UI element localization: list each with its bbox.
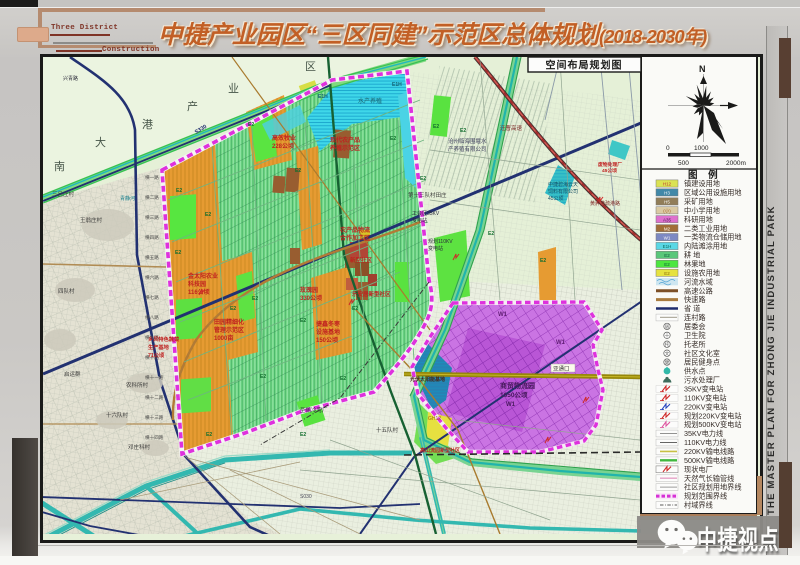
- svg-text:第十三队村田庄: 第十三队村田庄: [408, 191, 447, 199]
- svg-text:71公顷: 71公顷: [148, 351, 165, 359]
- svg-text:乐安居新型社区: 乐安居新型社区: [352, 290, 391, 298]
- svg-text:E2: E2: [540, 258, 546, 264]
- svg-text:青静河: 青静河: [120, 195, 135, 202]
- svg-text:E2: E2: [300, 318, 306, 324]
- svg-text:220KV输电线路: 220KV输电线路: [684, 447, 734, 456]
- svg-text:中小学用地: 中小学用地: [684, 206, 720, 215]
- svg-text:养殖示范区: 养殖示范区: [329, 144, 360, 152]
- svg-text:文: 文: [665, 350, 670, 357]
- svg-text:水产养殖: 水产养殖: [358, 97, 382, 105]
- svg-text:产: 产: [187, 99, 198, 113]
- svg-text:35KV变电站: 35KV变电站: [684, 385, 723, 394]
- svg-text:托: 托: [665, 341, 670, 347]
- svg-text:E2: E2: [260, 374, 266, 380]
- svg-text:王翁庄村: 王翁庄村: [80, 216, 103, 224]
- svg-text:合作加工区: 合作加工区: [340, 234, 370, 242]
- svg-text:横十四路: 横十四路: [145, 434, 164, 441]
- svg-text:健: 健: [665, 359, 670, 366]
- svg-text:GH12: GH12: [428, 416, 441, 422]
- svg-text:45公顷: 45公顷: [602, 167, 617, 174]
- svg-text:快速路: 快速路: [684, 295, 706, 304]
- svg-text:E2: E2: [206, 432, 212, 438]
- svg-text:金太阳农业: 金太阳农业: [187, 272, 218, 280]
- svg-text:黄骅港疏港路: 黄骅港疏港路: [590, 200, 620, 207]
- svg-text:E2: E2: [664, 253, 670, 258]
- svg-text:居委会: 居委会: [684, 322, 706, 331]
- svg-text:新型社区: 新型社区: [350, 256, 373, 264]
- svg-text:亚通口: 亚通口: [553, 365, 570, 373]
- svg-text:区域公用设施用地: 区域公用设施用地: [684, 188, 742, 197]
- svg-text:圣佩冷弯厂: 圣佩冷弯厂: [300, 406, 328, 414]
- svg-text:M2: M2: [664, 226, 671, 231]
- svg-text:十五队村: 十五队村: [376, 426, 399, 434]
- svg-text:现状电厂: 现状电厂: [684, 465, 713, 474]
- svg-text:W1: W1: [506, 402, 516, 408]
- svg-text:乡风特色蔬菜: 乡风特色蔬菜: [148, 335, 180, 343]
- svg-text:河流水域: 河流水域: [684, 277, 713, 286]
- svg-text:供水点: 供水点: [684, 367, 706, 376]
- svg-text:科技园: 科技园: [188, 280, 206, 288]
- svg-text:商贸物流园: 商贸物流园: [500, 381, 535, 390]
- svg-text:E2: E2: [252, 296, 258, 302]
- svg-text:横一路: 横一路: [145, 174, 159, 181]
- svg-text:玫瑰园: 玫瑰园: [300, 286, 318, 294]
- svg-text:南: 南: [54, 160, 65, 173]
- svg-text:社区规划用地界线: 社区规划用地界线: [684, 483, 742, 492]
- svg-text:横四路: 横四路: [145, 234, 159, 241]
- svg-text:规划110KV: 规划110KV: [428, 238, 453, 245]
- svg-text:横七路: 横七路: [145, 294, 159, 301]
- svg-text:横十三路: 横十三路: [145, 414, 164, 421]
- svg-text:228公顷: 228公顷: [272, 142, 294, 150]
- svg-text:E2: E2: [205, 212, 211, 218]
- svg-text:E2: E2: [175, 250, 181, 256]
- svg-text:采矿用地: 采矿用地: [684, 197, 713, 206]
- svg-text:H5: H5: [664, 200, 670, 205]
- svg-text:十六队村: 十六队村: [106, 411, 129, 419]
- svg-text:横八路: 横八路: [145, 314, 159, 321]
- svg-text:E2: E2: [352, 306, 358, 312]
- svg-text:110KV电力线: 110KV电力线: [684, 438, 727, 447]
- svg-text:邓庄科村: 邓庄科村: [128, 443, 151, 451]
- svg-text:捷鑫冬枣: 捷鑫冬枣: [316, 320, 341, 328]
- svg-text:150公顷: 150公顷: [316, 336, 338, 344]
- svg-text:托老所: 托老所: [684, 340, 706, 349]
- svg-text:A35: A35: [663, 217, 672, 222]
- svg-text:沧州临海围堰水: 沧州临海围堰水: [448, 137, 487, 145]
- svg-text:光伏太阳能基地: 光伏太阳能基地: [409, 376, 445, 383]
- svg-text:居民健身点: 居民健身点: [684, 358, 720, 367]
- svg-text:省 道: 省 道: [684, 304, 700, 313]
- svg-text:E2: E2: [300, 432, 306, 438]
- svg-text:220KV变电站: 220KV变电站: [684, 402, 727, 411]
- svg-text:高速公路: 高速公路: [684, 286, 713, 295]
- svg-text:天然气长输管线: 天然气长输管线: [684, 474, 734, 483]
- svg-text:变电站: 变电站: [428, 245, 443, 252]
- svg-text:45公顷: 45公顷: [548, 195, 564, 202]
- svg-text:横五路: 横五路: [145, 254, 159, 261]
- svg-text:规划范围界线: 规划范围界线: [684, 492, 727, 501]
- svg-text:1000亩: 1000亩: [214, 334, 233, 342]
- svg-text:330公顷: 330公顷: [300, 294, 322, 302]
- svg-text:规划500KV变电站: 规划500KV变电站: [684, 420, 742, 429]
- svg-text:区: 区: [305, 61, 316, 73]
- svg-text:空间布局规划图: 空间布局规划图: [546, 59, 623, 72]
- svg-text:大: 大: [95, 135, 106, 149]
- svg-text:E2: E2: [295, 168, 301, 174]
- svg-text:二类工业用地: 二类工业用地: [684, 224, 727, 233]
- svg-text:E1H: E1H: [663, 244, 672, 249]
- svg-text:E2: E2: [248, 122, 254, 128]
- svg-text:2000m: 2000m: [726, 160, 746, 167]
- svg-text:横二路: 横二路: [145, 194, 159, 201]
- svg-text:社区文化室: 社区文化室: [684, 349, 720, 358]
- svg-text:E2: E2: [390, 136, 396, 142]
- svg-text:(小): (小): [663, 208, 671, 215]
- svg-text:E2: E2: [664, 262, 670, 267]
- svg-text:E2: E2: [488, 231, 494, 237]
- svg-text:村域界线: 村域界线: [684, 501, 713, 510]
- svg-text:E2: E2: [340, 376, 346, 382]
- svg-text:规划220KV变电站: 规划220KV变电站: [684, 411, 742, 420]
- svg-text:田园精细化: 田园精细化: [214, 318, 244, 326]
- svg-text:500KV输电线路: 500KV输电线路: [684, 456, 734, 465]
- svg-text:横十二路: 横十二路: [145, 394, 164, 401]
- svg-text:一类物流仓储用地: 一类物流仓储用地: [684, 233, 742, 242]
- svg-text:工会区35KV: 工会区35KV: [412, 210, 440, 217]
- svg-text:兴青路: 兴青路: [63, 75, 78, 82]
- svg-text:废物处理厂: 废物处理厂: [598, 161, 622, 168]
- svg-text:500: 500: [678, 160, 689, 167]
- svg-text:110KV变电站: 110KV变电站: [684, 393, 727, 402]
- svg-text:E2: E2: [433, 124, 439, 130]
- svg-text:横十一路: 横十一路: [145, 374, 164, 381]
- svg-text:镇建设用地: 镇建设用地: [684, 179, 720, 188]
- svg-text:生产基地: 生产基地: [148, 343, 170, 351]
- svg-text:E2: E2: [176, 188, 182, 194]
- svg-text:E2: E2: [664, 271, 670, 276]
- svg-text:E2: E2: [460, 128, 466, 134]
- svg-text:设施基地: 设施基地: [316, 328, 340, 336]
- svg-text:耕 地: 耕 地: [684, 251, 700, 260]
- svg-text:内陆滩涂用地: 内陆滩涂用地: [684, 242, 727, 251]
- svg-text:三吕庄村: 三吕庄村: [52, 190, 75, 198]
- svg-text:W1: W1: [664, 235, 671, 240]
- svg-text:W1: W1: [556, 340, 566, 346]
- svg-text:业: 业: [228, 82, 239, 95]
- svg-text:管理示范区: 管理示范区: [214, 326, 244, 334]
- svg-text:农产品物流: 农产品物流: [339, 226, 370, 234]
- svg-text:迁曹高速: 迁曹高速: [500, 124, 523, 132]
- svg-text:林果地: 林果地: [684, 260, 706, 269]
- svg-text:W1: W1: [498, 312, 508, 318]
- svg-text:0: 0: [666, 145, 670, 152]
- svg-text:现代农产品: 现代农产品: [330, 136, 360, 144]
- svg-text:E2: E2: [420, 176, 426, 182]
- svg-text:横三路: 横三路: [145, 214, 159, 221]
- svg-text:E1H: E1H: [392, 82, 402, 88]
- svg-text:港: 港: [142, 118, 153, 131]
- svg-text:连村路: 连村路: [684, 313, 706, 322]
- svg-text:1650公顷: 1650公顷: [500, 391, 528, 399]
- svg-text:H3: H3: [664, 191, 670, 196]
- svg-text:横六路: 横六路: [145, 274, 159, 281]
- svg-text:四队村: 四队村: [58, 287, 75, 295]
- svg-text:N: N: [699, 64, 706, 74]
- svg-text:启运群: 启运群: [64, 370, 81, 378]
- svg-text:设施农用地: 设施农用地: [684, 268, 720, 277]
- svg-text:中捷碧海云天: 中捷碧海云天: [548, 181, 578, 188]
- svg-text:农科所村: 农科所村: [126, 381, 149, 389]
- svg-text:饲料有限公司: 饲料有限公司: [548, 188, 578, 195]
- svg-text:变电站: 变电站: [412, 217, 427, 224]
- svg-text:污水处理厂: 污水处理厂: [684, 376, 720, 385]
- svg-text:科研用地: 科研用地: [684, 215, 713, 224]
- svg-text:S030: S030: [300, 494, 312, 500]
- svg-text:十: 十: [665, 332, 670, 339]
- svg-text:高山流园新型社区: 高山流园新型社区: [420, 447, 460, 454]
- svg-text:1000: 1000: [694, 145, 709, 152]
- svg-text:卫生院: 卫生院: [684, 331, 706, 340]
- svg-text:产养殖有限公司: 产养殖有限公司: [448, 145, 487, 153]
- svg-text:35KV电力线: 35KV电力线: [684, 429, 723, 438]
- svg-text:E1H: E1H: [318, 94, 328, 100]
- svg-text:高效牧业: 高效牧业: [272, 134, 296, 142]
- svg-text:H12: H12: [663, 182, 672, 187]
- svg-text:E2: E2: [230, 306, 236, 312]
